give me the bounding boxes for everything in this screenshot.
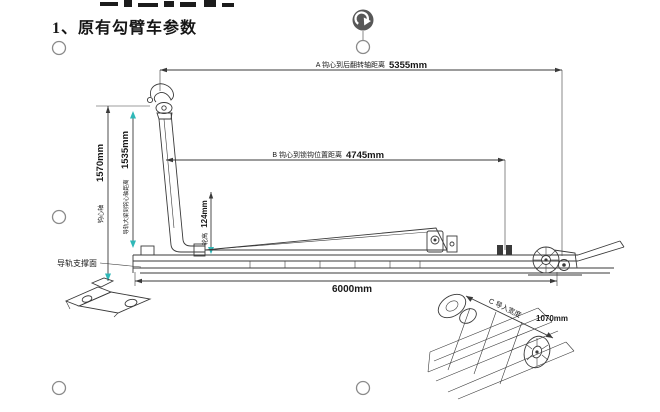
dim-c-value: 1070mm [536,314,568,323]
rail-support-detail: 导轨支撑面 [57,258,150,317]
dim-roller-value: 124mm [200,200,209,228]
hook-arm [147,84,205,256]
dim-c-label: C 导入宽度 [487,296,522,319]
selection-handle-top-left[interactable] [53,42,66,55]
dim-a-value: 5355mm [389,60,427,71]
dimension-overall-length: 6000mm [135,272,557,295]
selection-handle-middle-left[interactable] [53,211,66,224]
selection-handle-bottom-left[interactable] [53,382,66,395]
dimension-roller-height: 124mm 轮高 [200,192,214,254]
dim-length-value: 6000mm [332,284,372,295]
lock-bracket [494,245,515,255]
dimension-c: C 导入宽度 1070mm [466,296,568,338]
selection-handle-bottom-center[interactable] [357,382,370,395]
dim-rail-value: 1535mm [120,131,131,169]
rail-support-label: 导轨支撑面 [57,258,97,268]
dim-b-label: B 钩心到锁钩位置距离 [272,150,342,159]
dim-hook-height-value: 1570mm [95,144,106,182]
dimension-b: B 钩心到锁钩位置距离 4745mm [166,150,505,250]
rotate-handle[interactable] [353,10,374,42]
dimension-rail-to-hook: 1535mm 导轨大梁到钩心轴距离 [120,111,136,248]
dim-a-label: A 钩心到后翻转轴距离 [316,60,385,69]
dim-hook-height-label: 钩心轴 [97,205,105,224]
tipping-boom [205,228,457,252]
dim-b-value: 4745mm [346,150,384,161]
hook-arm-truck-drawing: A 钩心到后翻转轴距离 5355mm B 钩心到锁钩位置距离 4745mm 15… [0,0,660,412]
selection-handle-top-center[interactable] [357,41,370,54]
rear-module-detail: C 导入宽度 1070mm [428,289,574,399]
dim-rail-label: 导轨大梁到钩心轴距离 [122,179,130,235]
document-page: 1、原有勾臂车参数 A 钩心到后翻转轴距离 5355mm B 钩心到锁钩位置距离… [0,0,660,412]
dim-roller-label: 轮高 [201,233,209,245]
